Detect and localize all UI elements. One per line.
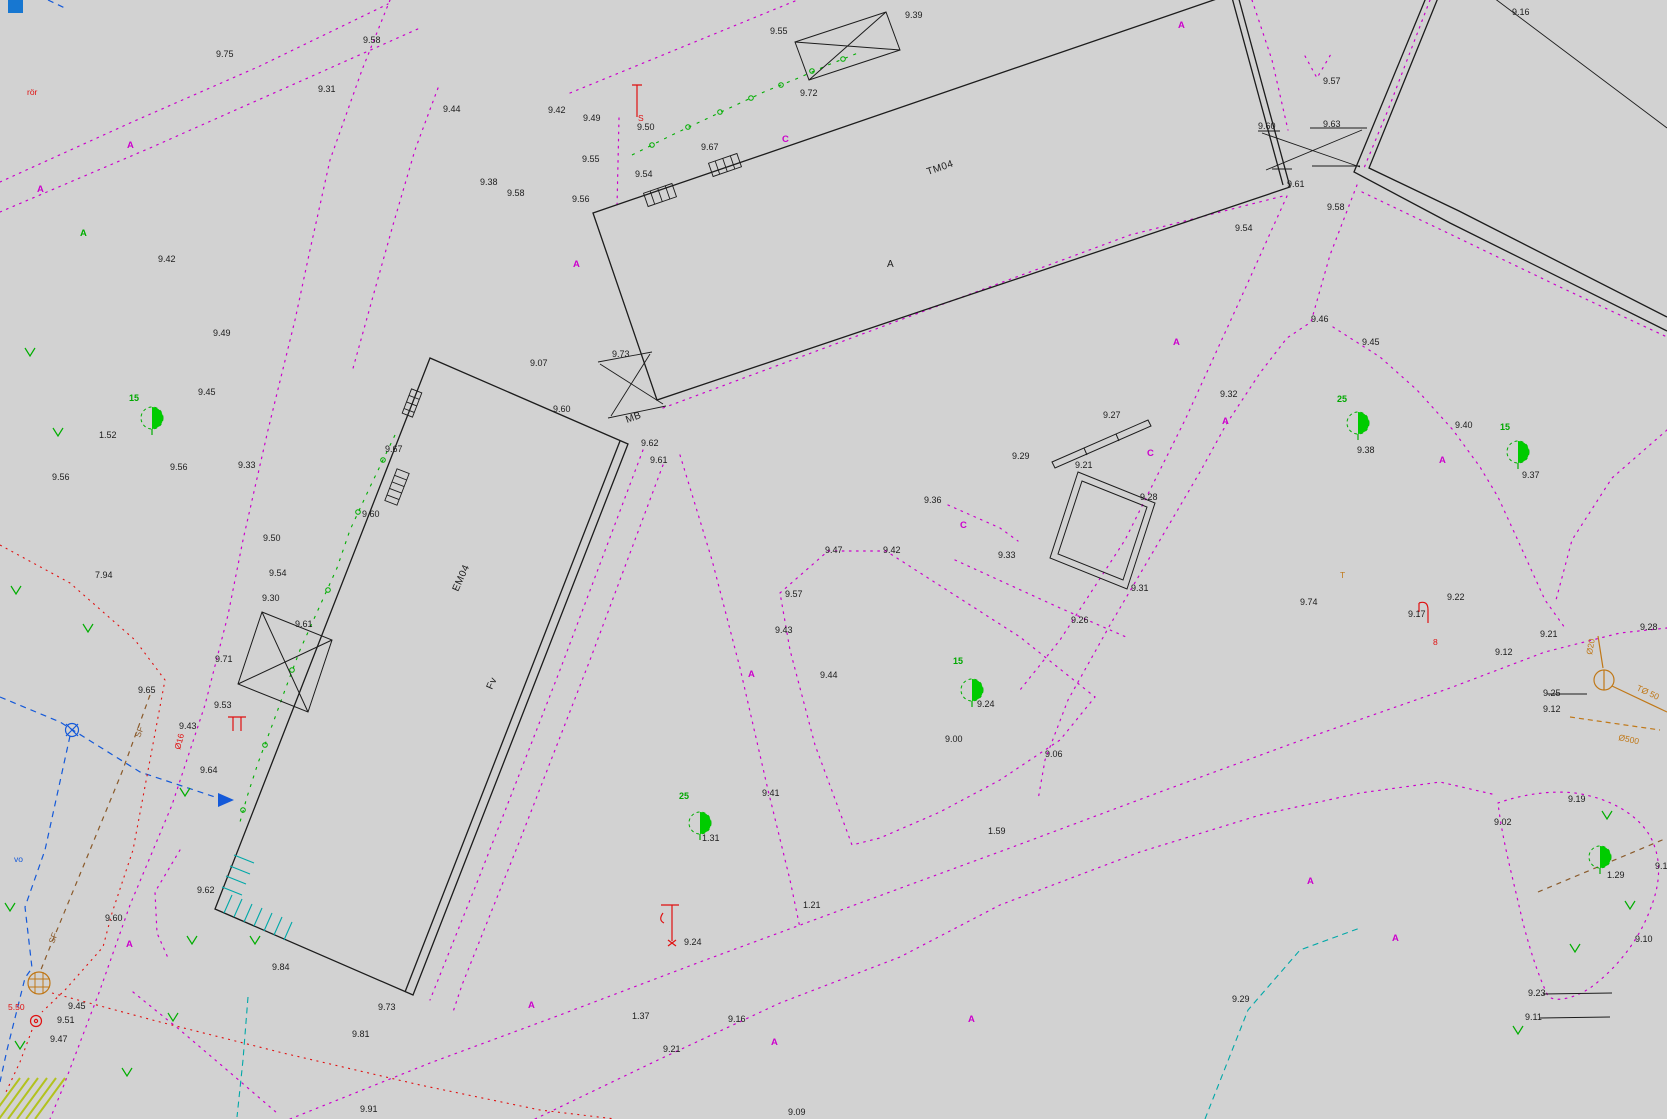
spot-elevation: 9.91	[360, 1104, 378, 1114]
spot-elevation: 9.02	[1494, 817, 1512, 827]
spot-elevation: 9.40	[1455, 420, 1473, 430]
spot-elevation: 9.21	[1540, 629, 1558, 639]
area-letter: A	[1222, 416, 1229, 427]
area-letter: A	[1392, 933, 1399, 944]
tree-count-label: 25	[1337, 394, 1347, 404]
spot-elevation: 9.12	[1543, 704, 1561, 714]
tree-count-label: 25	[679, 791, 689, 801]
utility-label: rör	[27, 87, 38, 97]
spot-elevation: 9.58	[363, 35, 381, 45]
tree-count-label: 15	[1500, 422, 1510, 432]
spot-elevation: 9.61	[650, 455, 668, 465]
spot-elevation: 9.41	[762, 788, 780, 798]
spot-elevation: 9.72	[800, 88, 818, 98]
spot-elevation: 9.71	[215, 654, 233, 664]
area-letter: A	[748, 669, 755, 680]
area-letter: A	[127, 140, 134, 151]
spot-elevation: 1.37	[632, 1011, 650, 1021]
spot-elevation: 1.59	[988, 826, 1006, 836]
spot-elevation: 9.50	[637, 122, 655, 132]
spot-elevation: 9.56	[572, 194, 590, 204]
utility-label: vo	[14, 854, 23, 864]
spot-elevation: 9.21	[663, 1044, 681, 1054]
spot-elevation: 9.07	[530, 358, 548, 368]
spot-elevation: 9.45	[198, 387, 216, 397]
spot-elevation: 9.17	[1408, 609, 1426, 619]
spot-elevation: 9.16	[1512, 7, 1530, 17]
area-letter: A	[573, 259, 580, 270]
spot-elevation: 9.54	[1235, 223, 1253, 233]
area-letter: A	[37, 184, 44, 195]
spot-elevation: 9.47	[825, 545, 843, 555]
spot-elevation: 1.29	[1607, 870, 1625, 880]
spot-elevation: 9.15	[1655, 861, 1667, 871]
spot-elevation: 9.21	[1075, 460, 1093, 470]
spot-elevation: 9.67	[385, 444, 403, 454]
area-letter: A	[1307, 876, 1314, 887]
spot-elevation: 9.81	[352, 1029, 370, 1039]
spot-elevation: 9.24	[977, 699, 995, 709]
utility-label: 5.50	[8, 1002, 25, 1012]
spot-elevation: 9.33	[238, 460, 256, 470]
spot-elevation: 9.62	[641, 438, 659, 448]
spot-elevation: 9.60	[362, 509, 380, 519]
spot-elevation: 9.84	[272, 962, 290, 972]
spot-elevation: 9.27	[1103, 410, 1121, 420]
utility-label: T	[1340, 570, 1345, 580]
spot-elevation: 9.12	[1495, 647, 1513, 657]
spot-elevation: 1.21	[803, 900, 821, 910]
spot-elevation: 9.44	[443, 104, 461, 114]
spot-elevation: 9.42	[883, 545, 901, 555]
area-letter: A	[1173, 337, 1180, 348]
spot-elevation: 9.58	[1327, 202, 1345, 212]
spot-elevation: 9.61	[1287, 179, 1305, 189]
spot-elevation: 9.33	[998, 550, 1016, 560]
spot-elevation: 9.42	[158, 254, 176, 264]
utility-label: S	[638, 113, 644, 123]
spot-elevation: 9.65	[138, 685, 156, 695]
spot-elevation: 9.23	[1528, 988, 1546, 998]
area-letter: A	[126, 939, 133, 950]
spot-elevation: 9.29	[1012, 451, 1030, 461]
spot-elevation: 9.45	[68, 1001, 86, 1011]
spot-elevation: 9.55	[770, 26, 788, 36]
spot-elevation: 9.09	[788, 1107, 806, 1117]
spot-elevation: 1.52	[99, 430, 117, 440]
spot-elevation: 9.30	[262, 593, 280, 603]
spot-elevation: 9.28	[1640, 622, 1658, 632]
spot-elevation: 9.00	[945, 734, 963, 744]
drawing-viewport: 9.759.319.589.449.429.389.499.509.559.58…	[0, 0, 1667, 1119]
spot-elevation: 9.36	[924, 495, 942, 505]
spot-elevation: 9.60	[1258, 121, 1276, 131]
area-letter: A	[1178, 20, 1185, 31]
spot-elevation: 9.54	[635, 169, 653, 179]
spot-elevation: 9.46	[1311, 314, 1329, 324]
spot-elevation: 9.11	[1525, 1012, 1542, 1022]
area-letter: A	[968, 1014, 975, 1025]
tree-count-label: 15	[129, 393, 139, 403]
spot-elevation: 9.50	[263, 533, 281, 543]
spot-elevation: 1.31	[702, 833, 720, 843]
area-letter: A	[80, 228, 87, 239]
spot-elevation: 9.38	[1357, 445, 1375, 455]
spot-elevation: 9.55	[582, 154, 600, 164]
spot-elevation: 9.56	[52, 472, 70, 482]
spot-elevation: 9.28	[1140, 492, 1158, 502]
spot-elevation: 9.26	[1071, 615, 1089, 625]
spot-elevation: 9.60	[105, 913, 123, 923]
spot-elevation: 9.16	[728, 1014, 746, 1024]
spot-elevation: 9.43	[179, 721, 197, 731]
spot-elevation: 7.94	[95, 570, 113, 580]
spot-elevation: 9.43	[775, 625, 793, 635]
area-letter: C	[1147, 448, 1154, 459]
spot-elevation: 9.31	[318, 84, 336, 94]
spot-elevation: 9.06	[1045, 749, 1063, 759]
spot-elevation: 9.37	[1522, 470, 1540, 480]
cad-canvas[interactable]: 9.759.319.589.449.429.389.499.509.559.58…	[0, 0, 1667, 1119]
spot-elevation: 9.56	[170, 462, 188, 472]
spot-elevation: 9.29	[1232, 994, 1250, 1004]
spot-elevation: 9.22	[1447, 592, 1465, 602]
tree-count-label: 15	[953, 656, 963, 666]
spot-elevation: 9.61	[295, 619, 313, 629]
area-letter: A	[1439, 455, 1446, 466]
spot-elevation: 9.49	[213, 328, 231, 338]
spot-elevation: 9.63	[1323, 119, 1341, 129]
canvas-background	[0, 0, 1667, 1119]
spot-elevation: 9.38	[480, 177, 498, 187]
spot-elevation: 9.58	[507, 188, 525, 198]
spot-elevation: 9.49	[583, 113, 601, 123]
area-letter: C	[960, 520, 967, 531]
spot-elevation: 9.51	[57, 1015, 75, 1025]
spot-elevation: 9.32	[1220, 389, 1238, 399]
spot-elevation: 9.24	[684, 937, 702, 947]
spot-elevation: 9.19	[1568, 794, 1586, 804]
spot-elevation: 9.45	[1362, 337, 1380, 347]
spot-elevation: 9.31	[1131, 583, 1149, 593]
spot-elevation: 9.75	[216, 49, 234, 59]
spot-elevation: 9.67	[701, 142, 719, 152]
spot-elevation: 9.57	[785, 589, 803, 599]
utility-label: 8	[1433, 637, 1438, 647]
spot-elevation: 9.42	[548, 105, 566, 115]
spot-elevation: 9.74	[1300, 597, 1318, 607]
area-letter: A	[528, 1000, 535, 1011]
spot-elevation: 9.10	[1635, 934, 1653, 944]
spot-elevation: 9.60	[553, 404, 571, 414]
spot-elevation: 9.64	[200, 765, 218, 775]
spot-elevation: 9.47	[50, 1034, 68, 1044]
spot-elevation: 9.39	[905, 10, 923, 20]
spot-elevation: 9.25	[1543, 688, 1561, 698]
spot-elevation: 9.73	[378, 1002, 396, 1012]
spot-elevation: 9.73	[612, 349, 630, 359]
spot-elevation: 9.57	[1323, 76, 1341, 86]
area-letter: C	[782, 134, 789, 145]
spot-elevation: 9.44	[820, 670, 838, 680]
spot-elevation: 9.62	[197, 885, 215, 895]
area-letter: A	[771, 1037, 778, 1048]
spot-elevation: 9.54	[269, 568, 287, 578]
blue-reference-marker	[8, 0, 23, 13]
spot-elevation: 9.53	[214, 700, 232, 710]
building-label: A	[887, 259, 894, 270]
